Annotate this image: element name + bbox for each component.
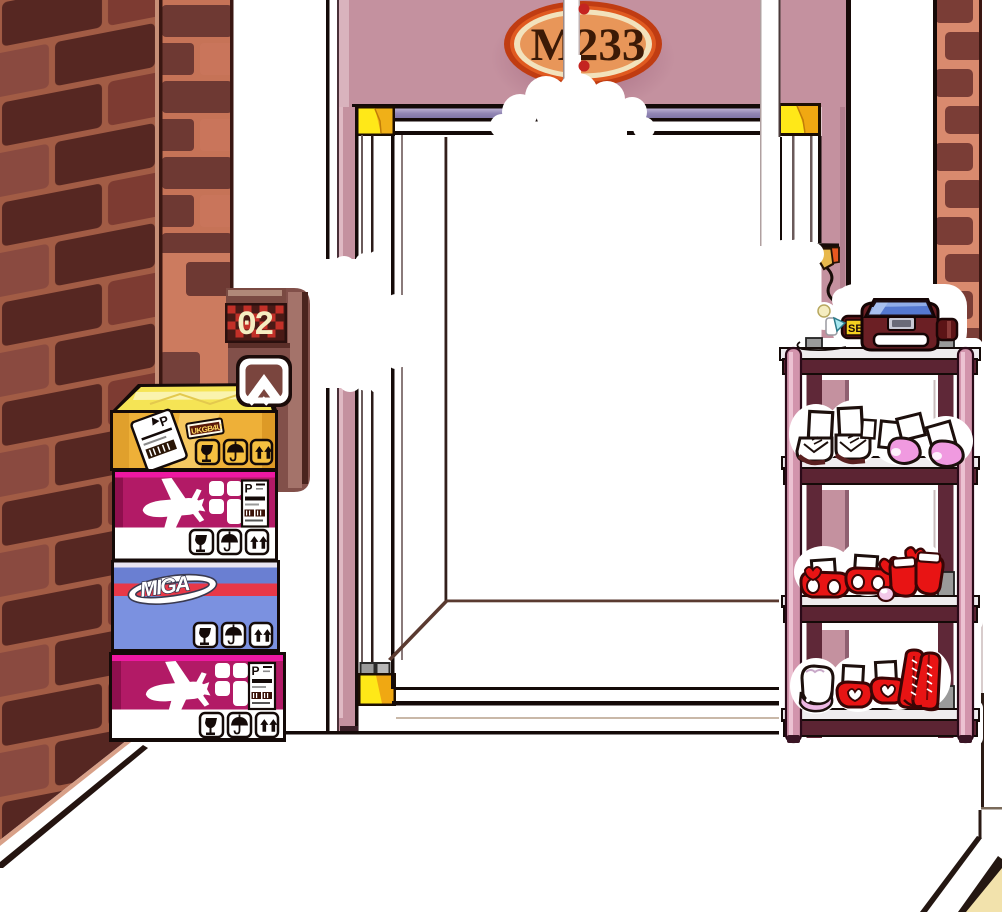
svg-text:02: 02 (237, 307, 273, 345)
svg-text:SE: SE (848, 323, 863, 335)
